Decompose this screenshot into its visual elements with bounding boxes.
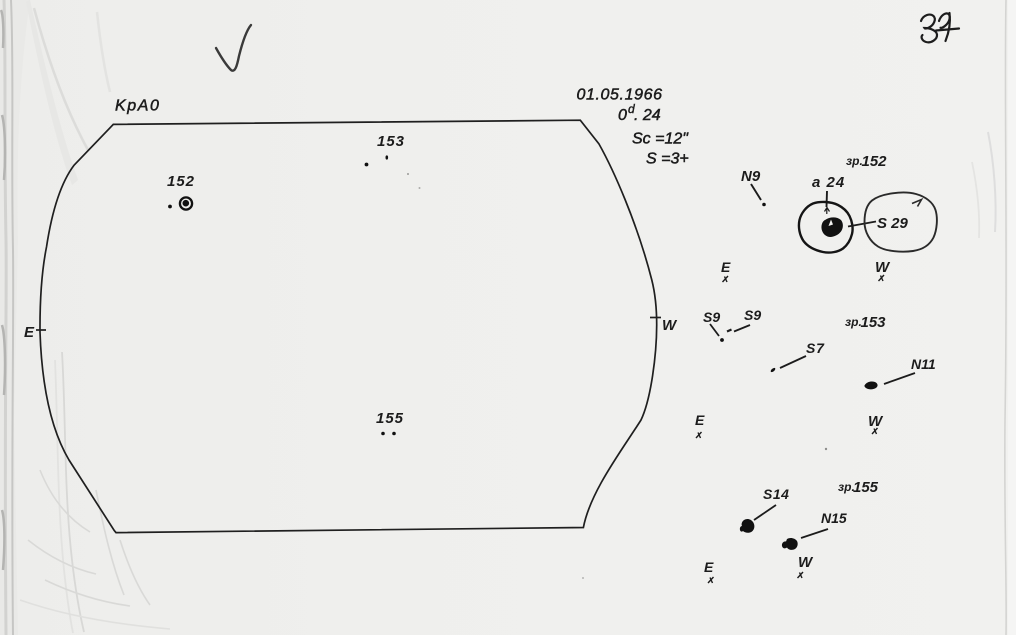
svg-text:KpA0: KpA0 xyxy=(115,98,161,115)
svg-text:W: W xyxy=(875,259,891,276)
svg-text:S7: S7 xyxy=(806,340,825,356)
svg-text:S9: S9 xyxy=(703,309,720,325)
svg-text:152: 152 xyxy=(167,173,195,190)
svg-text:S9: S9 xyxy=(744,307,761,323)
svg-text:E: E xyxy=(24,324,35,341)
svg-text:. 24: . 24 xyxy=(634,107,661,124)
svg-text:01.05.1966: 01.05.1966 xyxy=(577,87,663,104)
svg-text:W: W xyxy=(798,554,814,571)
svg-text:W: W xyxy=(662,317,678,334)
svg-text:N11: N11 xyxy=(911,356,936,372)
svg-text:E: E xyxy=(704,559,714,575)
svg-text:Sc =12": Sc =12" xyxy=(632,131,689,148)
svg-text:S =3+: S =3+ xyxy=(646,151,689,168)
svg-text:зр.: зр. xyxy=(846,154,863,168)
svg-text:152: 152 xyxy=(862,153,888,170)
svg-text:E: E xyxy=(721,259,731,275)
svg-text:a 24: a 24 xyxy=(812,174,845,191)
svg-text:E: E xyxy=(695,412,705,428)
svg-text:S14: S14 xyxy=(763,486,789,502)
svg-text:153: 153 xyxy=(861,314,887,331)
svg-text:S 29: S 29 xyxy=(877,215,909,232)
svg-text:155: 155 xyxy=(853,479,879,496)
svg-text:0: 0 xyxy=(618,107,627,124)
svg-text:N9: N9 xyxy=(741,168,761,185)
svg-text:155: 155 xyxy=(376,410,404,427)
svg-text:N15: N15 xyxy=(821,510,847,526)
svg-text:W: W xyxy=(868,413,884,430)
svg-text:зр.: зр. xyxy=(845,315,862,329)
svg-text:153: 153 xyxy=(377,133,405,150)
